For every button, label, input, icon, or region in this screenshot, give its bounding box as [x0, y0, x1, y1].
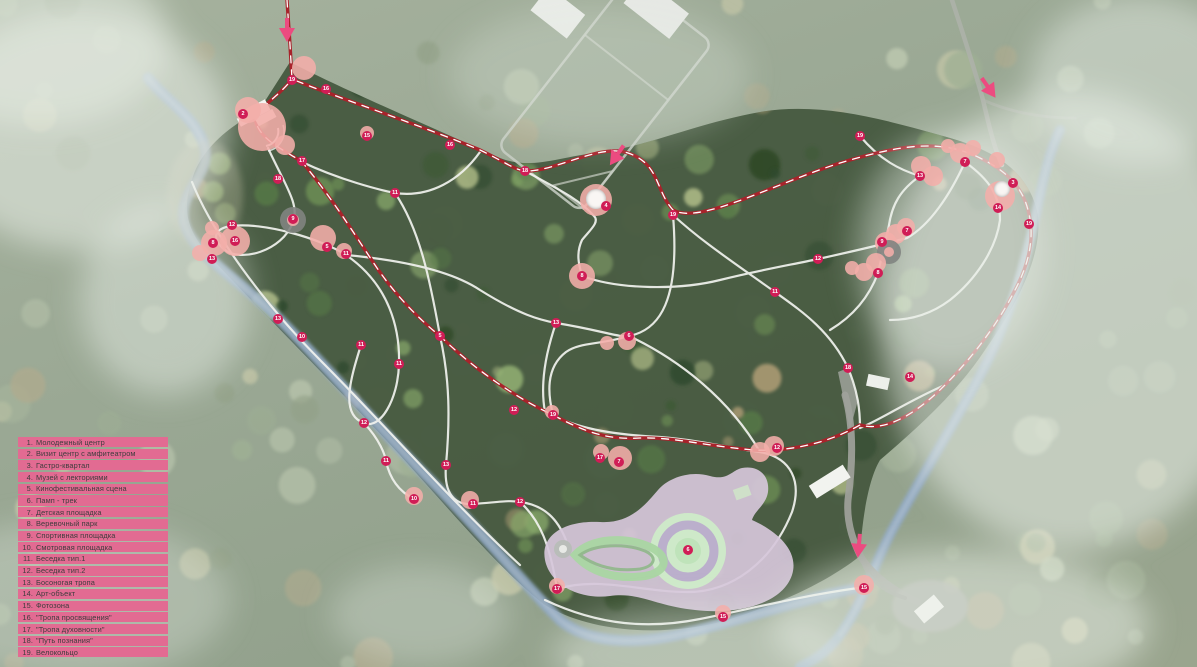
legend-item-15: 15.Фотозона [18, 601, 168, 611]
legend-item-2: 2.Визит центр с амфитеатром [18, 449, 168, 459]
legend-item-13: 13.Босоногая тропа [18, 577, 168, 587]
legend-item-3: 3.Гастро-квартал [18, 460, 168, 470]
masterplan-map: 2191615161718184191971331419121179812816… [0, 0, 1197, 667]
legend-item-14: 14.Арт-объект [18, 589, 168, 599]
legend-item-12: 12.Беседка тип.2 [18, 566, 168, 576]
legend-item-5: 5.Кинофестивальная сцена [18, 484, 168, 494]
legend-item-9: 9.Спортивная площадка [18, 531, 168, 541]
legend: 1.Молодежный центр2.Визит центр с амфите… [18, 437, 168, 659]
legend-item-7: 7.Детская площадка [18, 507, 168, 517]
legend-item-4: 4.Музей с лекториями [18, 472, 168, 482]
legend-item-16: 16."Тропа просвящения" [18, 612, 168, 622]
legend-item-17: 17."Тропа духовности" [18, 624, 168, 634]
legend-item-10: 10.Смотровая площадка [18, 542, 168, 552]
legend-item-1: 1.Молодежный центр [18, 437, 168, 447]
entry-arrows-layer [0, 0, 1197, 667]
legend-item-18: 18."Путь познания" [18, 636, 168, 646]
legend-item-11: 11.Беседка тип.1 [18, 554, 168, 564]
legend-item-8: 8.Веревочный парк [18, 519, 168, 529]
legend-item-6: 6.Памп - трек [18, 495, 168, 505]
legend-item-19: 19.Велокольцо [18, 647, 168, 657]
